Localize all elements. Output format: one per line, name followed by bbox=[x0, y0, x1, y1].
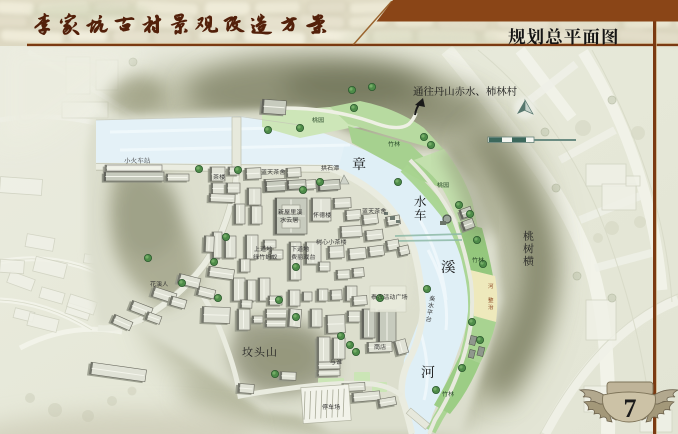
svg-text:7: 7 bbox=[624, 394, 637, 423]
